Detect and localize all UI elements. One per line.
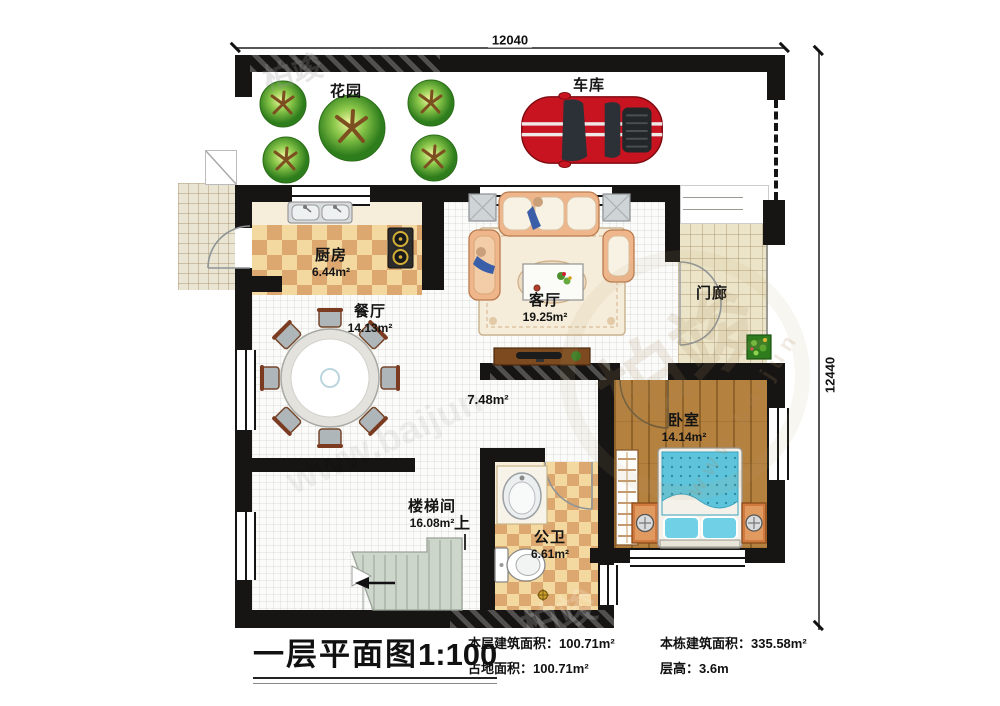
tree-icon [411,135,457,181]
bedroom-furniture [614,445,767,548]
dining-window [235,350,256,430]
floor-area-stat: 本层建筑面积：100.71m² [468,631,615,656]
wall [767,363,785,408]
stats-column-2: 本栋建筑面积：335.58m² 层高：3.6m [660,631,807,681]
car-top-view [517,90,667,170]
pillow-icon [702,517,737,539]
bedroom-label: 卧室 14.14m² [662,412,707,444]
canopy-diagonal [206,151,236,184]
pillow-icon [664,517,699,539]
porch-edge-line [766,245,768,345]
plant-icon [571,351,581,361]
bedroom-east-window [767,408,789,480]
car-windshield [562,99,587,161]
tree-icon [319,95,385,161]
porch-step-line [683,209,743,210]
stairs-up-label: 上 [454,514,470,533]
gas-stove-icon [388,228,413,268]
bathroom-label: 公卫 6.61m² [531,529,569,561]
top-dimension-label: 12040 [488,33,532,48]
garage-door-dashed [774,100,778,200]
floor-drain-icon [537,589,549,601]
porch-label: 门廊 [696,285,728,303]
wall [598,380,614,448]
wall [763,200,785,245]
kitchen-sink-icon [288,202,352,223]
terrace-canopy [205,150,237,185]
right-dimension-label: 12440 [823,353,838,397]
wall [767,72,785,100]
garage-label: 车库 [573,77,605,95]
wall [422,202,444,290]
round-table-icon [281,329,379,427]
exterior-south-of-bedroom [607,563,785,628]
wall [480,448,495,610]
right-dimension-line [818,50,820,630]
bathroom-sink-icon [497,466,547,524]
wall [665,202,680,262]
site-area-stat: 占地面积：100.71m² [468,656,615,681]
stats-column-1: 本层建筑面积：100.71m² 占地面积：100.71m² [468,631,615,681]
tree-icon [260,81,306,127]
wall [235,72,252,97]
tree-icon [408,80,454,126]
total-area-stat: 本栋建筑面积：335.58m² [660,631,807,656]
nightstand-icon [742,503,766,543]
drawing-title: 一层平面图1:100 [253,629,497,684]
car-rear-window [605,102,621,158]
wall [240,458,415,472]
hall-area-label: 7.48m² [467,392,508,408]
car-mirror [559,92,571,99]
wall [235,55,785,72]
floor-plan-sheet: 12040 12440 [0,0,1000,706]
bathroom-window [598,565,618,605]
porch-double-door [666,256,746,366]
stairwell-label: 楼梯间 16.08m² [408,498,456,530]
wall [745,548,785,563]
porch-plant [746,334,772,360]
up-leader-line [464,534,466,550]
living-label: 客厅 19.25m² [523,292,568,324]
stairwell-window [235,512,256,580]
stairs [345,528,480,610]
tv-icon [516,352,562,359]
wall [598,605,614,628]
porch-step-line [683,197,743,198]
car-mirror [559,161,571,168]
bedroom-south-window [630,548,745,567]
title-text: 一层平面图 [253,637,418,672]
nightstand-icon [632,503,658,543]
wall [235,610,607,628]
armchair-icon [603,230,634,282]
sofa-icon [499,192,599,236]
porch-step [680,185,769,224]
tree-icon [263,137,309,183]
tv-cabinet [494,346,590,366]
dining-label: 餐厅 14.13m² [348,303,393,335]
garden-label: 花园 [330,83,362,101]
terrace-door [190,224,252,272]
title-underline [253,677,497,684]
double-bed-icon [658,448,742,548]
kitchen-label: 厨房 6.44m² [312,247,350,279]
floor-height-stat: 层高：3.6m [660,656,807,681]
